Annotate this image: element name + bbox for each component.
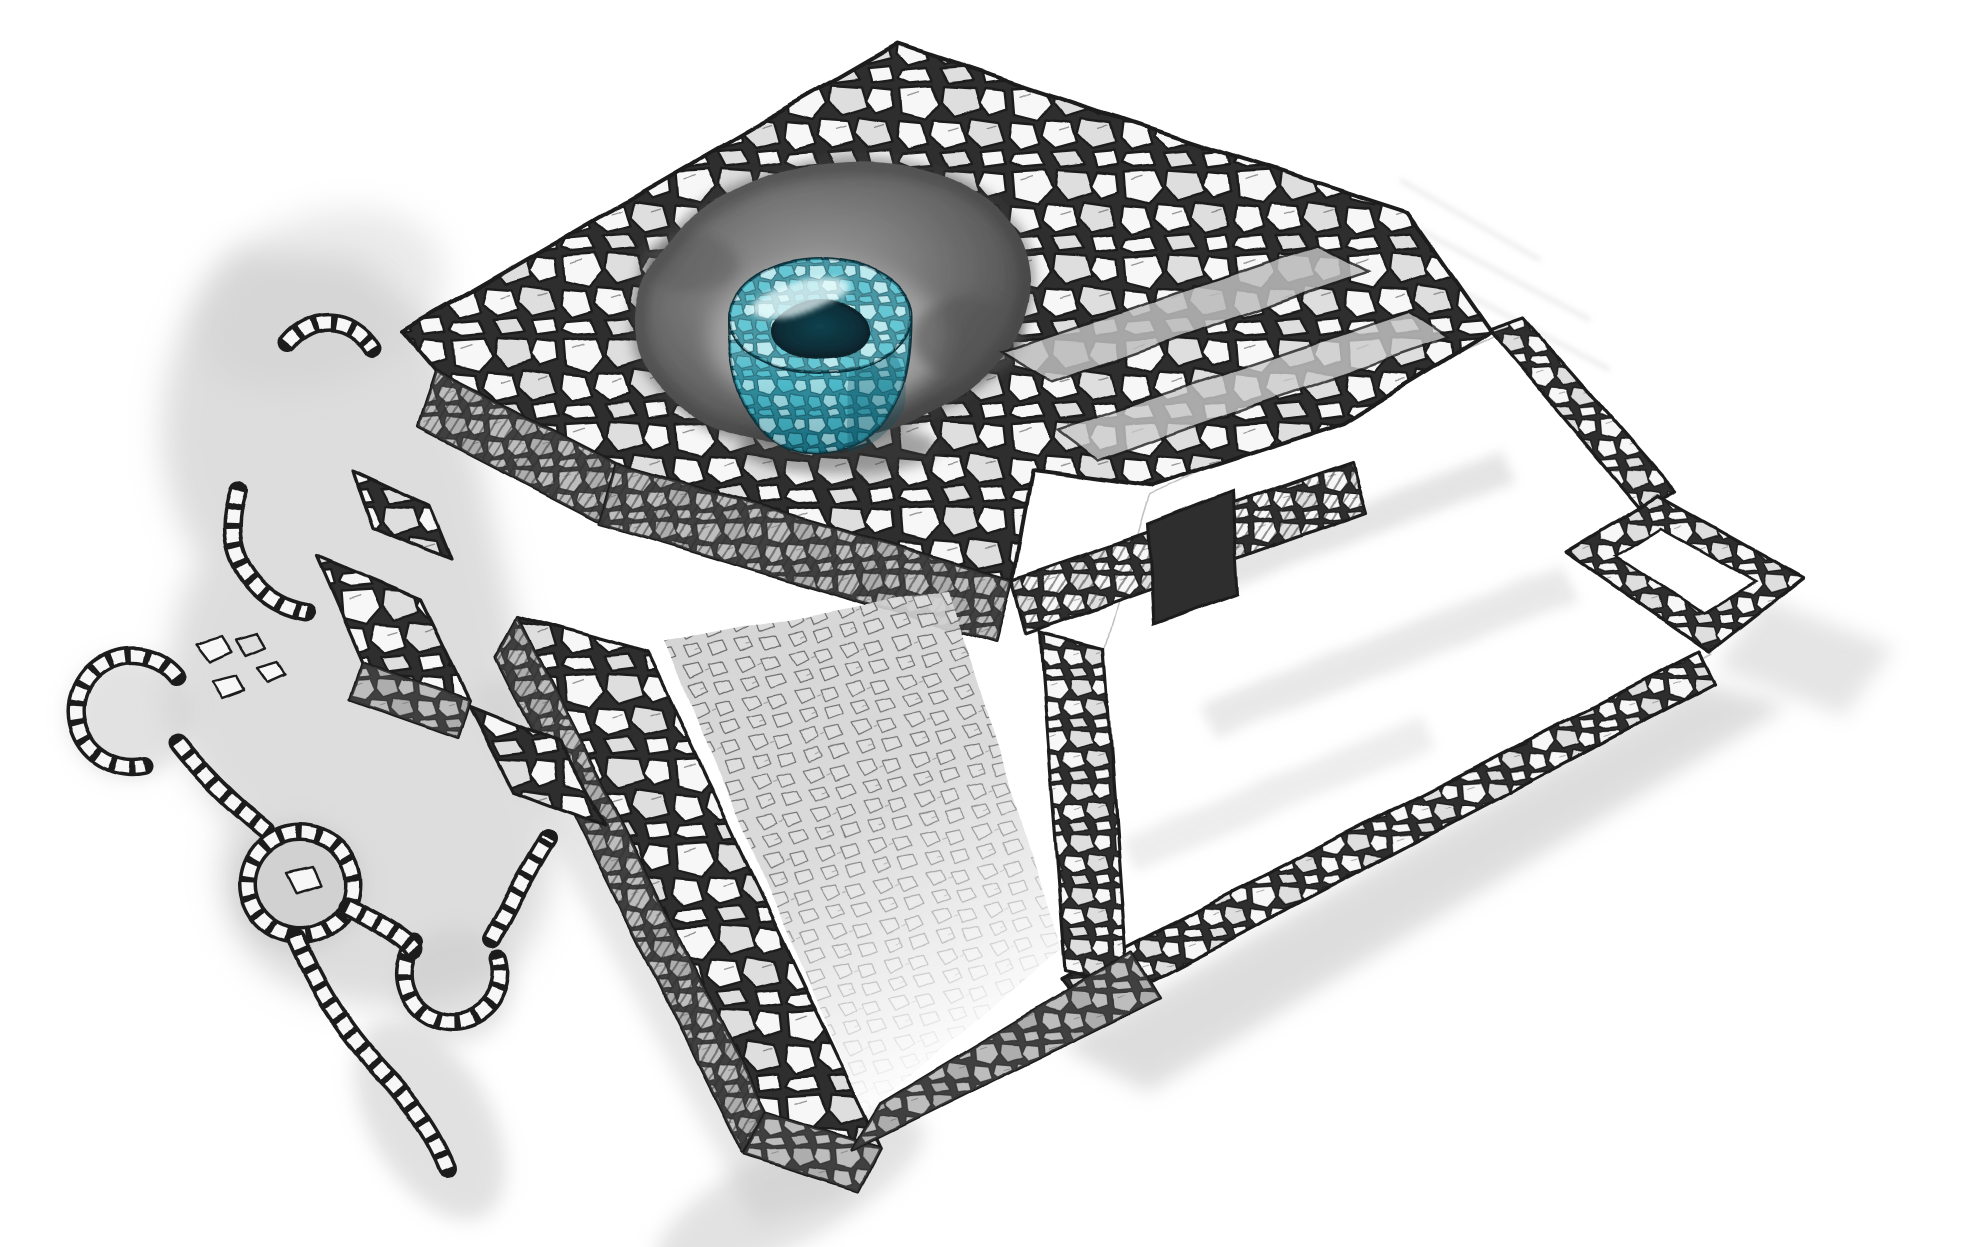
- illustration-canvas: Hand-drawn isometric illustration of a r…: [0, 0, 1984, 1247]
- ruins-illustration: Hand-drawn isometric illustration of a r…: [0, 0, 1984, 1247]
